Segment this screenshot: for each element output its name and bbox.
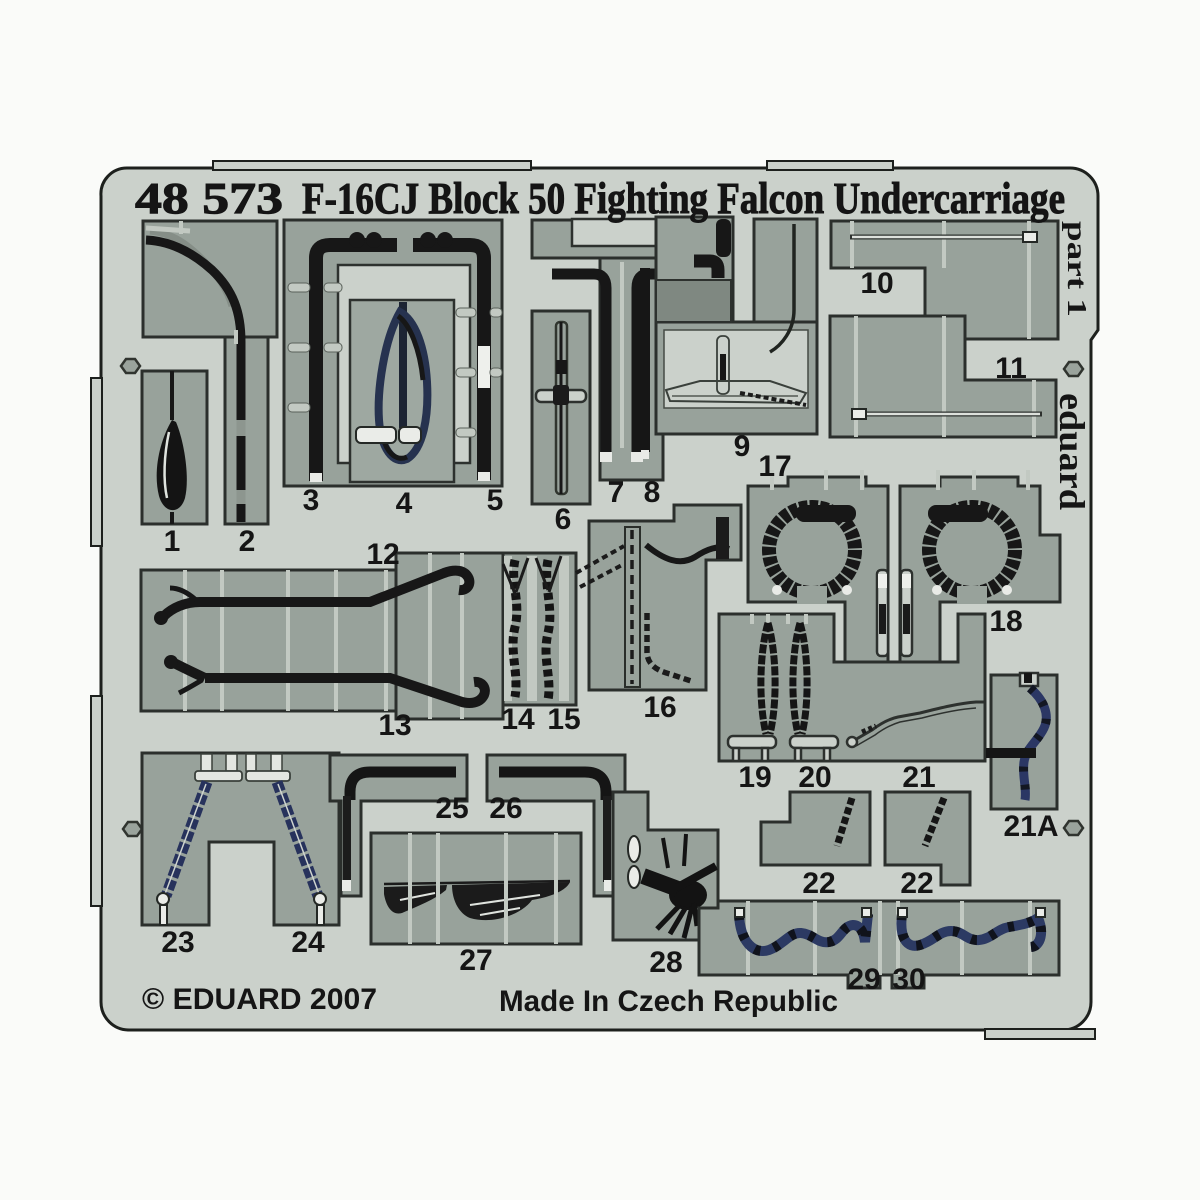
svg-text:5: 5 <box>487 484 504 517</box>
svg-text:28: 28 <box>649 946 682 979</box>
svg-text:23: 23 <box>161 926 194 959</box>
svg-text:21: 21 <box>902 761 935 794</box>
svg-text:19: 19 <box>738 761 771 794</box>
svg-text:F-16CJ Block 50 Fighting Falco: F-16CJ Block 50 Fighting Falcon Undercar… <box>302 174 1065 223</box>
svg-text:12: 12 <box>366 538 399 571</box>
svg-text:eduard: eduard <box>1052 393 1092 510</box>
svg-text:7: 7 <box>608 476 625 509</box>
svg-text:2: 2 <box>239 525 256 558</box>
svg-text:Made In Czech Republic: Made In Czech Republic <box>499 985 838 1018</box>
svg-text:part 1: part 1 <box>1062 221 1092 317</box>
svg-text:3: 3 <box>303 484 320 517</box>
svg-text:30: 30 <box>892 963 925 996</box>
svg-text:27: 27 <box>459 944 492 977</box>
svg-text:1: 1 <box>164 525 181 558</box>
svg-text:11: 11 <box>995 352 1027 385</box>
svg-text:16: 16 <box>643 691 676 724</box>
svg-text:© EDUARD 2007: © EDUARD 2007 <box>142 983 377 1016</box>
svg-text:8: 8 <box>644 476 661 509</box>
svg-text:15: 15 <box>547 703 580 736</box>
svg-text:21A: 21A <box>1003 810 1058 843</box>
svg-text:6: 6 <box>555 503 572 536</box>
svg-text:22: 22 <box>900 867 933 900</box>
svg-text:20: 20 <box>798 761 831 794</box>
svg-text:18: 18 <box>989 605 1022 638</box>
svg-text:29: 29 <box>847 963 880 996</box>
svg-text:25: 25 <box>435 792 468 825</box>
svg-text:26: 26 <box>489 792 522 825</box>
svg-text:48 573: 48 573 <box>135 174 283 223</box>
svg-text:17: 17 <box>758 450 791 483</box>
svg-text:9: 9 <box>734 430 751 463</box>
svg-text:4: 4 <box>396 487 413 520</box>
svg-text:10: 10 <box>860 267 893 300</box>
svg-text:24: 24 <box>291 926 325 959</box>
svg-text:14: 14 <box>501 703 535 736</box>
svg-text:13: 13 <box>378 709 411 742</box>
svg-text:22: 22 <box>802 867 835 900</box>
